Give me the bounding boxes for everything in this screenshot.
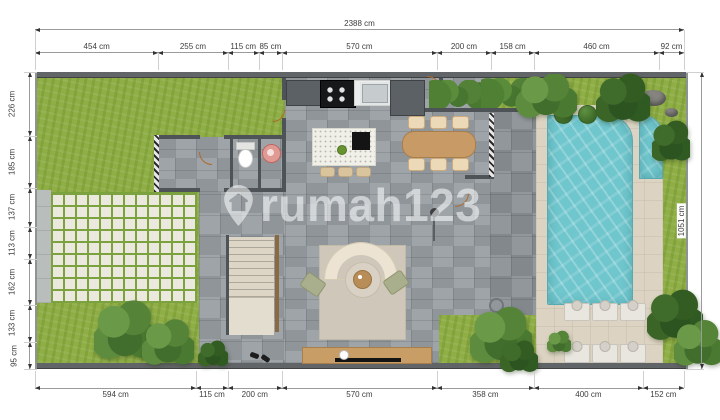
watermark-text: rumah123 <box>260 182 481 228</box>
dimension-label: 454 cm <box>82 42 112 51</box>
dimension-segment: 570 cm <box>282 43 437 53</box>
rumah123-pin-icon <box>222 184 255 227</box>
extension-line <box>259 53 260 70</box>
extension-line <box>491 53 492 70</box>
cat <box>339 350 349 360</box>
washbasin-bowl <box>267 149 274 156</box>
tree <box>142 318 194 368</box>
extension-line <box>228 53 229 70</box>
extension-line <box>35 30 36 70</box>
dimension-segment: 185 cm <box>20 136 30 188</box>
dining-chair <box>408 116 425 129</box>
wall <box>154 135 200 139</box>
island-hob <box>352 132 370 150</box>
dimension-label: 137 cm <box>7 192 16 222</box>
dimension-label: 113 cm <box>8 228 17 258</box>
insulated-wall <box>154 135 159 192</box>
dimension-label: 570 cm <box>344 390 374 399</box>
dimension-label: 200 cm <box>240 390 270 399</box>
extension-line <box>643 371 644 388</box>
extension-line <box>437 371 438 388</box>
bush <box>578 105 597 124</box>
dining-chair <box>452 158 469 171</box>
extension-line <box>35 371 36 388</box>
tree <box>198 340 228 368</box>
dimension-label: 358 cm <box>470 390 500 399</box>
cooktop-stove <box>320 80 356 108</box>
dimension-label: 570 cm <box>344 42 374 51</box>
concrete-path <box>37 190 51 303</box>
dimension-label: 226 cm <box>7 89 16 119</box>
dimension-segment: 162 cm <box>20 259 30 305</box>
kitchen-cabinet <box>286 80 322 106</box>
extension-line <box>684 371 685 388</box>
dimension-segment: 158 cm <box>491 43 534 53</box>
pool-water <box>547 115 633 305</box>
dimension-segment: 400 cm <box>534 388 643 398</box>
dimension-segment: 200 cm <box>228 388 282 398</box>
dimension-segment: 133 cm <box>20 305 30 343</box>
dimension-label: 460 cm <box>581 42 611 51</box>
dimension-segment: 255 cm <box>158 43 227 53</box>
tree <box>500 340 538 374</box>
pool-lounger <box>564 303 590 321</box>
table-decor <box>358 275 362 279</box>
dining-chair <box>452 116 469 129</box>
kitchen-sink <box>360 82 390 105</box>
dimension-segment: 137 cm <box>20 188 30 227</box>
tree <box>596 72 650 126</box>
tree <box>652 118 690 166</box>
dimension-label: 185 cm <box>7 147 16 177</box>
dimension-total: 2388 cm <box>35 20 684 30</box>
extension-line <box>684 53 685 70</box>
glass-sliding-door <box>489 113 494 177</box>
pool-lounger <box>592 303 618 321</box>
tree <box>515 74 577 118</box>
dimension-segment: 152 cm <box>643 388 684 398</box>
extension-line <box>282 371 283 388</box>
dimension-segment: 92 cm <box>659 43 684 53</box>
dimension-segment: 95 cm <box>20 342 30 369</box>
dimension-label: 162 cm <box>7 267 16 297</box>
dimension-segment: 358 cm <box>437 388 534 398</box>
dimension-label: 133 cm <box>7 308 16 338</box>
dimension-segment: 200 cm <box>437 43 491 53</box>
dimension-label: 200 cm <box>449 42 479 51</box>
dining-chair <box>430 116 447 129</box>
pool-lounger <box>592 344 618 363</box>
extension-line <box>282 53 283 70</box>
extension-line <box>158 53 159 70</box>
dining-chair <box>430 158 447 171</box>
dimension-label: 95 cm <box>10 343 19 369</box>
floor-plan-canvas: rumah123 454 cm255 cm115 cm85 cm570 cm20… <box>0 0 720 420</box>
dimension-label: 255 cm <box>178 42 208 51</box>
boundary-wall-top <box>37 72 686 78</box>
stair-landing <box>229 297 274 335</box>
extension-line <box>228 371 229 388</box>
dimension-label: 158 cm <box>497 42 527 51</box>
dimension-segment: 115 cm <box>196 388 227 398</box>
wall <box>154 188 200 192</box>
hedge <box>429 80 485 108</box>
dimension-label: 115 cm <box>197 390 227 399</box>
toilet <box>238 149 253 168</box>
extension-line <box>686 72 704 73</box>
dimension-label: 152 cm <box>648 390 678 399</box>
bar-stool <box>320 167 335 177</box>
extension-line <box>534 53 535 70</box>
watermark: rumah123 <box>222 182 481 228</box>
potted-plant <box>547 330 571 354</box>
dimension-segment: 115 cm <box>228 43 259 53</box>
dimension-label: 85 cm <box>257 42 283 51</box>
extension-line <box>196 371 197 388</box>
dimension-segment: 594 cm <box>35 388 196 398</box>
wall <box>224 135 285 139</box>
extension-line <box>659 53 660 70</box>
pool-lounger <box>620 303 646 321</box>
tree <box>674 318 720 370</box>
coffee-table <box>353 270 372 289</box>
extension-line <box>35 53 36 70</box>
dimension-label: 2388 cm <box>342 19 377 28</box>
dimension-label: 400 cm <box>573 390 603 399</box>
dining-table <box>402 131 476 158</box>
door-swing <box>261 98 285 122</box>
dimension-label: 115 cm <box>228 42 258 51</box>
fruit-bowl <box>337 145 347 155</box>
dimension-segment: 85 cm <box>259 43 282 53</box>
dimension-segment: 570 cm <box>282 388 437 398</box>
kitchen-cabinet <box>390 80 425 116</box>
stair-screen <box>275 235 279 332</box>
dimension-label: 92 cm <box>659 42 685 51</box>
bar-stool <box>338 167 353 177</box>
dining-chair <box>408 158 425 171</box>
landscape-rock <box>665 108 678 117</box>
dimension-segment: 113 cm <box>20 227 30 259</box>
extension-line <box>684 30 685 70</box>
pool-lounger <box>620 344 646 363</box>
extension-line <box>24 369 37 370</box>
dimension-label: 594 cm <box>101 390 131 399</box>
paver-patio <box>51 192 197 303</box>
dimension-segment: 226 cm <box>20 72 30 136</box>
extension-line <box>437 53 438 70</box>
dimension-segment: 454 cm <box>35 43 158 53</box>
staircase <box>229 237 274 297</box>
dimension-segment: 460 cm <box>534 43 659 53</box>
bar-stool <box>356 167 371 177</box>
